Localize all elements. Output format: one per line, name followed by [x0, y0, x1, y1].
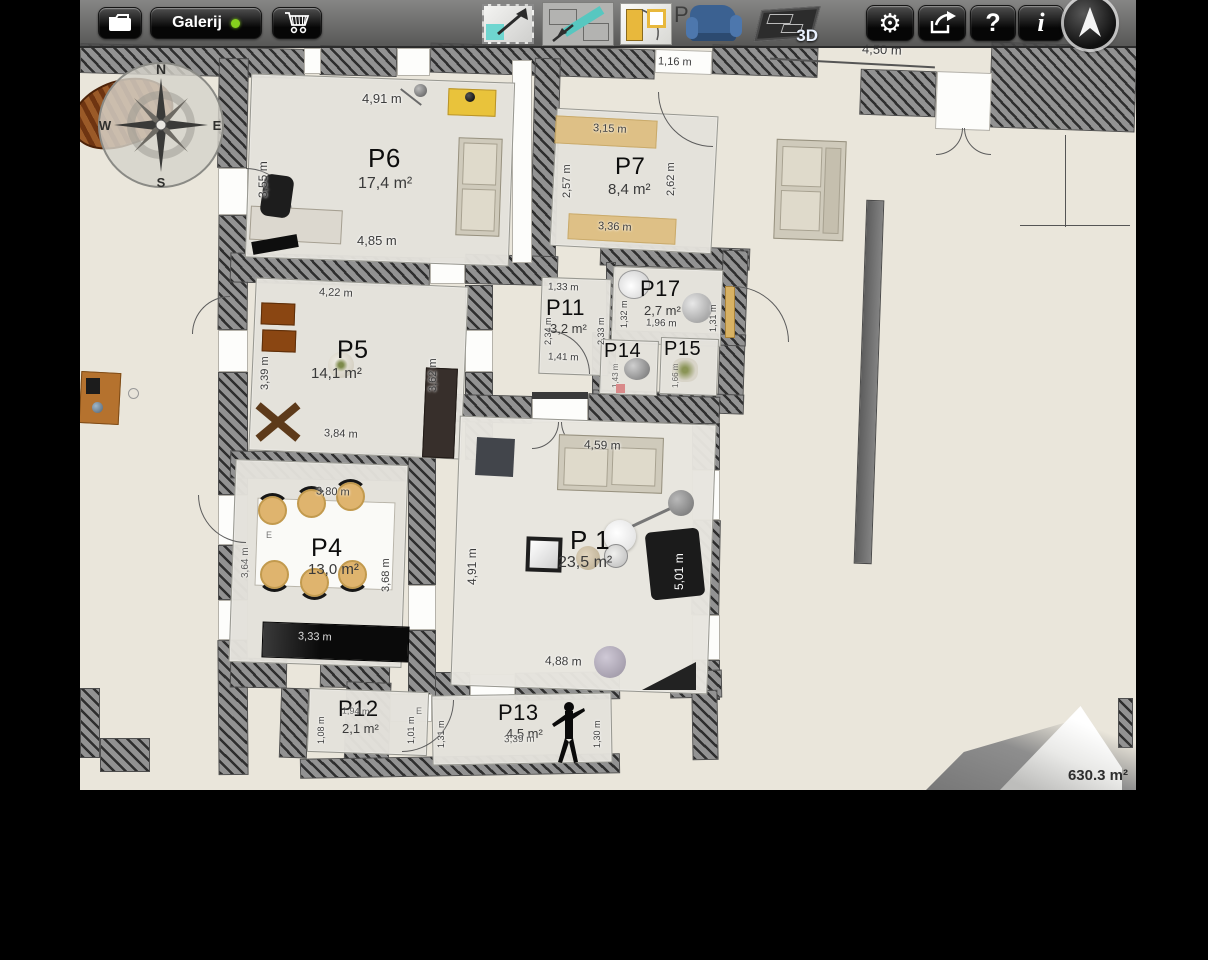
- room-p13-dim-mid: 3,39 m: [504, 734, 535, 746]
- info-icon: i: [1037, 10, 1044, 36]
- share-button[interactable]: [918, 5, 966, 41]
- room-p6-label: P6: [368, 143, 401, 174]
- room-p4-area: 13,0 m²: [308, 561, 359, 578]
- wall-stub-bl-2[interactable]: [80, 688, 100, 758]
- total-area-label: 630.3 m²: [1068, 767, 1128, 784]
- room-p1-dim-left: 4,91 m: [465, 548, 479, 585]
- room-p6-dim-top: 4,91 m: [362, 91, 402, 106]
- room-p12-dim-top: 1,94 m: [342, 706, 370, 717]
- room-p1-label: P 1: [570, 525, 610, 556]
- opening-p5-right[interactable]: [465, 330, 493, 372]
- room-p11-area: 3,2 m²: [550, 321, 587, 336]
- iso-plan-walls: [766, 14, 793, 24]
- table-item-knob: [92, 402, 103, 413]
- double-door-arc-right: [964, 128, 991, 155]
- room-p1-dim-bottom: 4,88 m: [545, 653, 582, 668]
- settings-button[interactable]: ⚙: [866, 5, 914, 41]
- room-p6-dim-left: 3,55 m: [256, 161, 270, 198]
- projects-button[interactable]: [98, 7, 142, 39]
- door-arc-left-mid: [192, 296, 230, 334]
- shop-button[interactable]: [272, 7, 322, 39]
- room-p15-label: P15: [664, 338, 701, 361]
- share-icon: [928, 11, 956, 35]
- doors-windows-tool[interactable]: [620, 3, 672, 45]
- room-p13-label: P13: [498, 700, 539, 726]
- gallery-button-label: Galerij: [172, 14, 222, 32]
- room-p1-area: 23,5 m²: [558, 554, 612, 572]
- room-p12-dim-left: 1,08 m: [316, 716, 326, 744]
- door-top-1[interactable]: [397, 48, 430, 76]
- window-top-1[interactable]: [304, 48, 321, 74]
- wall-p13-right[interactable]: [691, 690, 718, 760]
- door-arc-p4: [198, 495, 246, 543]
- compass-e: E: [213, 118, 222, 133]
- dim-line-right-v: [1065, 135, 1066, 227]
- room-p17-area: 2,7 m²: [644, 303, 681, 318]
- room-p4-dim-right: 3,68 m: [380, 558, 392, 592]
- room-p1-dim-right: 5,01 m: [672, 553, 686, 590]
- orientation-button[interactable]: [1064, 0, 1116, 49]
- floorplan-app-viewport: 4,50 m: [80, 0, 1136, 790]
- room-p6-dim-bottom: 4,85 m: [357, 233, 397, 248]
- room-p13-dim-right: 1,30 m: [592, 720, 602, 748]
- compass-s: S: [157, 175, 166, 190]
- room-p12-area: 2,1 m²: [342, 721, 379, 736]
- select-tool[interactable]: [482, 4, 534, 44]
- cart-icon: [284, 11, 310, 35]
- person-figure[interactable]: [550, 700, 586, 766]
- room-p5-dim-top: 4,22 m: [319, 286, 353, 299]
- wall-top-2[interactable]: [320, 45, 398, 77]
- wall-p12-left[interactable]: [279, 688, 309, 759]
- view-3d-tool[interactable]: 3D: [756, 4, 818, 46]
- folder-icon: [108, 14, 132, 32]
- compass-rose: N E S W: [96, 60, 226, 190]
- bench-brown-1[interactable]: [261, 302, 296, 325]
- lamp-knob[interactable]: [465, 92, 475, 102]
- marker-red: [616, 384, 625, 393]
- gear-icon: ⚙: [878, 10, 901, 36]
- room-p7-dim-top: 3,15 m: [593, 122, 627, 136]
- dining-chair-4[interactable]: [260, 560, 289, 589]
- window-glyph: [647, 9, 666, 28]
- bench-brown-2[interactable]: [262, 329, 297, 352]
- compass-w: W: [99, 118, 112, 133]
- furniture-tool[interactable]: [678, 3, 748, 45]
- room-p5-dim-bottom: 3,84 m: [324, 427, 358, 440]
- room-p5-dim-right: 3,62 m: [427, 358, 439, 392]
- room-p6-area: 17,4 m²: [358, 175, 412, 193]
- double-door-p1-lintel: [532, 392, 588, 399]
- pin-handle[interactable]: [414, 84, 427, 97]
- gallery-button[interactable]: Galerij: [150, 7, 262, 39]
- armchair-icon-arm-right: [730, 15, 742, 37]
- sofa-p6[interactable]: [455, 137, 502, 236]
- room-p13-dim-left: 1,31 m: [436, 720, 446, 748]
- window-p4-p1[interactable]: [408, 585, 436, 630]
- dim-line-right-h: [1020, 225, 1130, 226]
- help-button[interactable]: ?: [970, 5, 1016, 41]
- door-arc-p17-right: [733, 286, 789, 342]
- room-p7-label: P7: [615, 153, 645, 181]
- pencil-icon: [543, 3, 614, 46]
- corner-cabinet-dark[interactable]: [475, 437, 515, 477]
- marker-e-p12: E: [416, 706, 422, 716]
- rug-round[interactable]: [594, 646, 626, 678]
- room-p5-dim-left: 3,39 m: [259, 356, 271, 390]
- double-door-top-right[interactable]: [935, 71, 992, 131]
- wall-top-right-1[interactable]: [859, 69, 937, 118]
- room-p17-dim-right: 1,31 m: [708, 304, 718, 332]
- wall-p4-p1-a[interactable]: [408, 455, 436, 585]
- gallery-status-dot: [231, 19, 240, 28]
- room-p17-label: P17: [640, 276, 681, 302]
- compass-n: N: [156, 61, 166, 77]
- armchair-icon-arm-left: [686, 17, 698, 39]
- room-p11-dim-top: 1,33 m: [548, 281, 579, 293]
- table-item-dark: [86, 378, 100, 394]
- room-p4-dim-top: 3,80 m: [316, 485, 350, 498]
- room-p15-dim: 1,66 m: [671, 364, 680, 388]
- room-p4-label: P4: [311, 534, 343, 563]
- room-p11-dim-bottom: 1,41 m: [548, 351, 579, 363]
- wall-p4-p1-b[interactable]: [408, 630, 436, 700]
- room-p7-dim-bottom: 3,36 m: [598, 220, 632, 234]
- plant-p5-leaves: [332, 358, 350, 372]
- room-p7-dim-right: 2,62 m: [665, 162, 677, 196]
- room-p7-dim-left: 2,57 m: [561, 164, 573, 198]
- handle-gray-ball[interactable]: [668, 490, 694, 516]
- three-d-label: 3D: [796, 26, 818, 46]
- room-p7-area: 8,4 m²: [608, 181, 651, 198]
- wall-stub-bl-1[interactable]: [100, 738, 150, 772]
- room-p17-dim-bottom: 1,96 m: [646, 317, 677, 329]
- room-p11-dim-left: 2,34 m: [543, 317, 553, 345]
- sofa-outside-right[interactable]: [773, 139, 846, 241]
- draw-rooms-tool[interactable]: [542, 2, 614, 46]
- room-p1-dim-top: 4,59 m: [584, 437, 621, 452]
- dining-chair-1[interactable]: [258, 496, 287, 525]
- window-strip-p6-p7[interactable]: [512, 60, 532, 263]
- table-item-dot: [128, 388, 139, 399]
- wall-p5-right-a[interactable]: [465, 285, 493, 330]
- opening-left-mid[interactable]: [218, 330, 248, 372]
- room-p12-dim-right: 1,01 m: [406, 716, 416, 744]
- marker-e-p4: E: [266, 530, 272, 540]
- room-p4-dim-left: 3,64 m: [240, 547, 251, 578]
- dim-116: 1,16 m: [658, 55, 692, 68]
- sideboard-black[interactable]: [261, 621, 409, 662]
- help-icon: ?: [985, 9, 1000, 38]
- wall-top-4[interactable]: [712, 44, 819, 78]
- north-arrow-icon: [1064, 0, 1116, 49]
- cursor-arrow-icon: [484, 6, 532, 42]
- room-p4-dim-bottom: 3,33 m: [298, 630, 332, 643]
- room-p17-dim-left: 1,32 m: [619, 300, 629, 328]
- wall-long-right[interactable]: [854, 200, 885, 564]
- wall-top-right-2[interactable]: [989, 41, 1136, 132]
- info-button[interactable]: i: [1018, 5, 1064, 41]
- room-p14-label: P14: [604, 340, 641, 363]
- double-door-arc-left: [936, 128, 963, 155]
